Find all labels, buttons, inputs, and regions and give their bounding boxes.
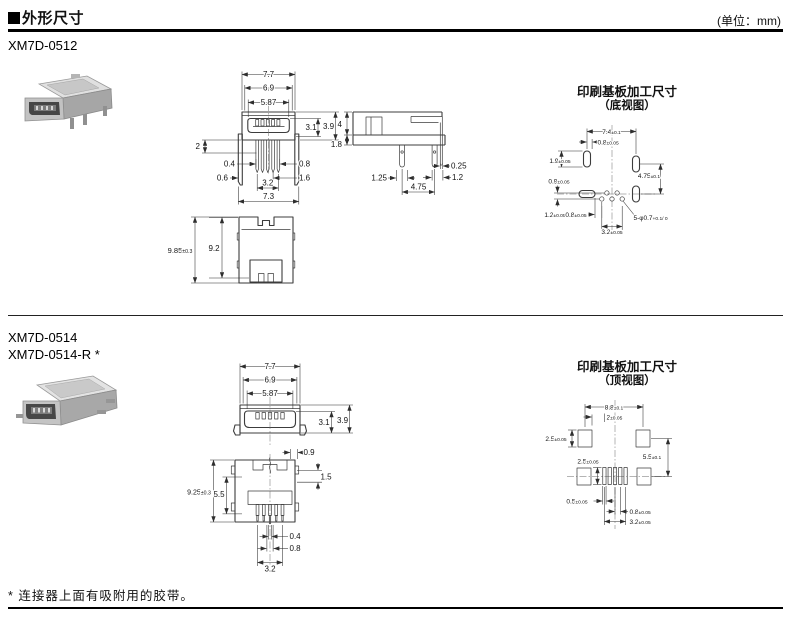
dim-front-3-1: 3.1 — [305, 123, 317, 132]
dim-front2-7-7: 7.7 — [264, 362, 276, 371]
header-rule — [8, 29, 783, 32]
dim-pcb1-4-75: 4.75±0.1 — [638, 173, 660, 180]
dim-front-6-9: 6.9 — [263, 84, 275, 93]
pcb-drawing-top-view: 8.8±0.1 2±0.05 2.5±0.05 2.5±0.05 5.5±0.1… — [545, 397, 791, 532]
dim-side-4-75: 4.75 — [411, 183, 427, 192]
dim-pcb2-8-8: 8.8±0.1 — [605, 404, 624, 411]
dim-front-0-8: 0.8 — [299, 160, 311, 169]
dim-pcb2-2-5b: 2.5±0.05 — [577, 458, 599, 465]
dim-pcb1-0-8b: 0.8±0.05 — [565, 212, 587, 219]
connector-photo-xm7d-0514 — [13, 368, 123, 446]
dim-pcb1-holes: 5-φ0.7+0.1/ 0 — [634, 215, 668, 222]
section-marker-icon — [8, 12, 20, 24]
dim-front-5-87: 5.87 — [261, 98, 277, 107]
dim-bot2-9-25: 9.25±0.3 — [187, 490, 211, 497]
pcb-dims-0514: 8.8±0.1 2±0.05 2.5±0.05 2.5±0.05 5.5±0.1… — [545, 404, 672, 526]
datasheet-page: 外形尺寸 (单位：mm) XM7D-0512 — [0, 0, 791, 622]
drawings-xm7d-0514: 7.7 6.9 5.87 3.1 3.9 — [185, 355, 365, 580]
pcb-drawing-bottom-view: 7.4±0.1 0.8±0.05 1.9±0.05 0.9±0.05 4.75±… — [545, 122, 791, 240]
dim-bot2-0-9: 0.9 — [304, 448, 316, 457]
front-view-0512: 7.7 6.9 5.87 3.1 3.9 2 0.4 0.6 0.8 — [196, 70, 339, 205]
connector-photo — [25, 74, 112, 129]
dim-pcb2-0-8: 0.8±0.05 — [630, 509, 652, 516]
pcb-subtitle: （顶视图） — [547, 375, 707, 389]
pcb-title: 印刷基板加工尺寸 — [547, 85, 707, 100]
dim-pcb1-1-9: 1.9±0.05 — [549, 158, 571, 165]
dim-pcb2-5-5: 5.5±0.1 — [643, 454, 662, 461]
dim-pcb1-1-2: 1.2±0.05 — [544, 212, 566, 219]
dim-front-2: 2 — [196, 142, 201, 151]
dim-front2-3-9: 3.9 — [337, 416, 349, 425]
page-title: 外形尺寸 — [22, 10, 84, 27]
dim-bot2-3-2: 3.2 — [264, 565, 276, 574]
dim-front-3-2: 3.2 — [262, 179, 274, 188]
model-label-xm7d-0512: XM7D-0512 — [8, 38, 77, 53]
model-label-xm7d-0514-r: XM7D-0514-R * — [8, 347, 100, 362]
side-view-0512: 4 1.8 0.25 1.2 1.25 4.75 — [331, 112, 467, 195]
dim-pcb1-0-9: 0.9±0.05 — [548, 178, 570, 185]
dim-front-7-7: 7.7 — [263, 70, 275, 79]
dim-front-1-6: 1.6 — [299, 174, 311, 183]
bottom-rule — [8, 607, 783, 609]
dim-front2-3-1: 3.1 — [318, 418, 330, 427]
pcb-layout-block-0514: 印刷基板加工尺寸 （顶视图） — [545, 360, 791, 532]
dim-bot2-1-5: 1.5 — [321, 473, 333, 482]
dim-pcb2-0-5: 0.5±0.05 — [566, 498, 588, 505]
dim-front2-6-9: 6.9 — [264, 376, 276, 385]
pcb-dims-0512: 7.4±0.1 0.8±0.05 1.9±0.05 0.9±0.05 4.75±… — [544, 128, 668, 236]
connector-photo-xm7d-0512 — [13, 68, 118, 153]
dim-front-7-3: 7.3 — [263, 192, 275, 201]
dim-pcb2-2: 2±0.05 — [607, 414, 623, 421]
dim-pcb2-2-5a: 2.5±0.05 — [545, 436, 567, 443]
dim-pcb1-0-8a: 0.8±0.05 — [598, 139, 620, 146]
dim-pcb1-7-4: 7.4±0.1 — [602, 129, 621, 136]
front-view-0514: 7.7 6.9 5.87 3.1 3.9 — [234, 362, 354, 445]
dim-side-1-8: 1.8 — [331, 140, 343, 149]
dim-top-9-2: 9.2 — [208, 244, 220, 253]
drawings-xm7d-0512: 7.7 6.9 5.87 3.1 3.9 2 0.4 0.6 0.8 — [160, 55, 500, 315]
pcb-layout-block-0512: 印刷基板加工尺寸 （底视图） 7.4±0.1 0.8±0 — [545, 85, 791, 240]
top-view-0512: 9.85±0.3 9.2 — [168, 217, 295, 283]
dim-side-1-25: 1.25 — [371, 174, 387, 183]
pcb-subtitle: （底视图） — [547, 100, 707, 114]
model-label-xm7d-0514: XM7D-0514 — [8, 330, 77, 345]
dim-bot2-5-5: 5.5 — [213, 490, 225, 499]
bottom-view-0514: 0.9 1.5 9.25±0.3 5.5 0.4 0.8 3.2 — [187, 448, 332, 574]
section-divider — [8, 315, 783, 316]
dim-front2-5-87: 5.87 — [262, 389, 278, 398]
dim-bot2-0-8: 0.8 — [290, 544, 302, 553]
page-title-block: 外形尺寸 — [8, 7, 84, 28]
pcb-title: 印刷基板加工尺寸 — [547, 360, 707, 375]
dim-pcb1-3-2: 3.2±0.05 — [601, 229, 623, 236]
unit-label: (单位：mm) — [717, 12, 781, 29]
dim-front-0-6: 0.6 — [217, 174, 229, 183]
footnote: * 连接器上面有吸附用的胶带。 — [8, 585, 194, 604]
dim-front-3-9: 3.9 — [323, 122, 335, 131]
dim-side-4: 4 — [338, 120, 343, 129]
connector-photo — [16, 376, 117, 425]
dim-side-0-25: 0.25 — [451, 162, 467, 171]
dim-top-9-85: 9.85±0.3 — [168, 246, 193, 255]
dim-bot2-0-4: 0.4 — [290, 532, 302, 541]
dim-pcb2-3-2: 3.2±0.05 — [630, 519, 652, 526]
dim-side-1-2: 1.2 — [452, 173, 464, 182]
dim-front-0-4: 0.4 — [224, 160, 236, 169]
